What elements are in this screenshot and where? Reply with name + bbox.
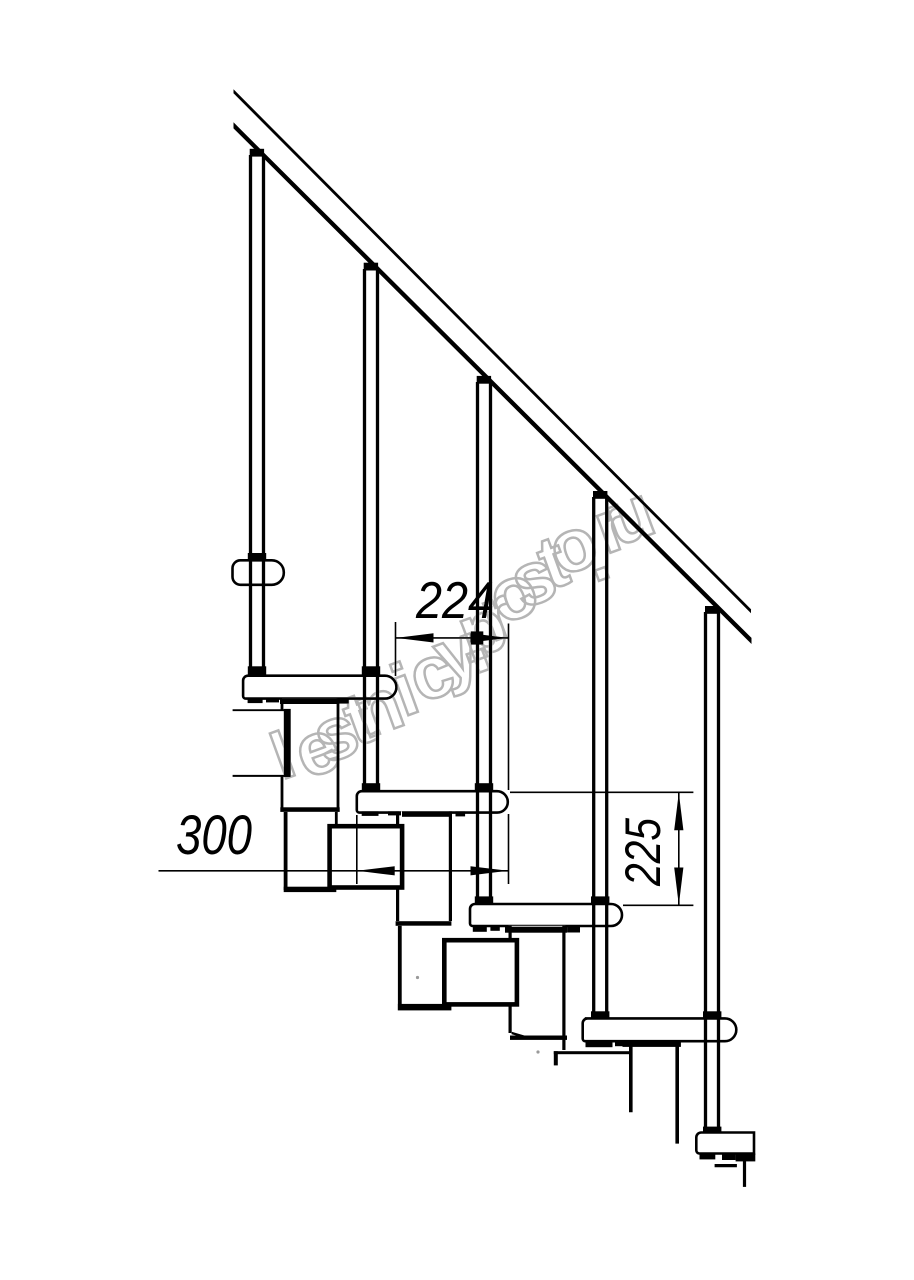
svg-text:225: 225 bbox=[615, 818, 671, 887]
svg-text:300: 300 bbox=[176, 803, 252, 866]
